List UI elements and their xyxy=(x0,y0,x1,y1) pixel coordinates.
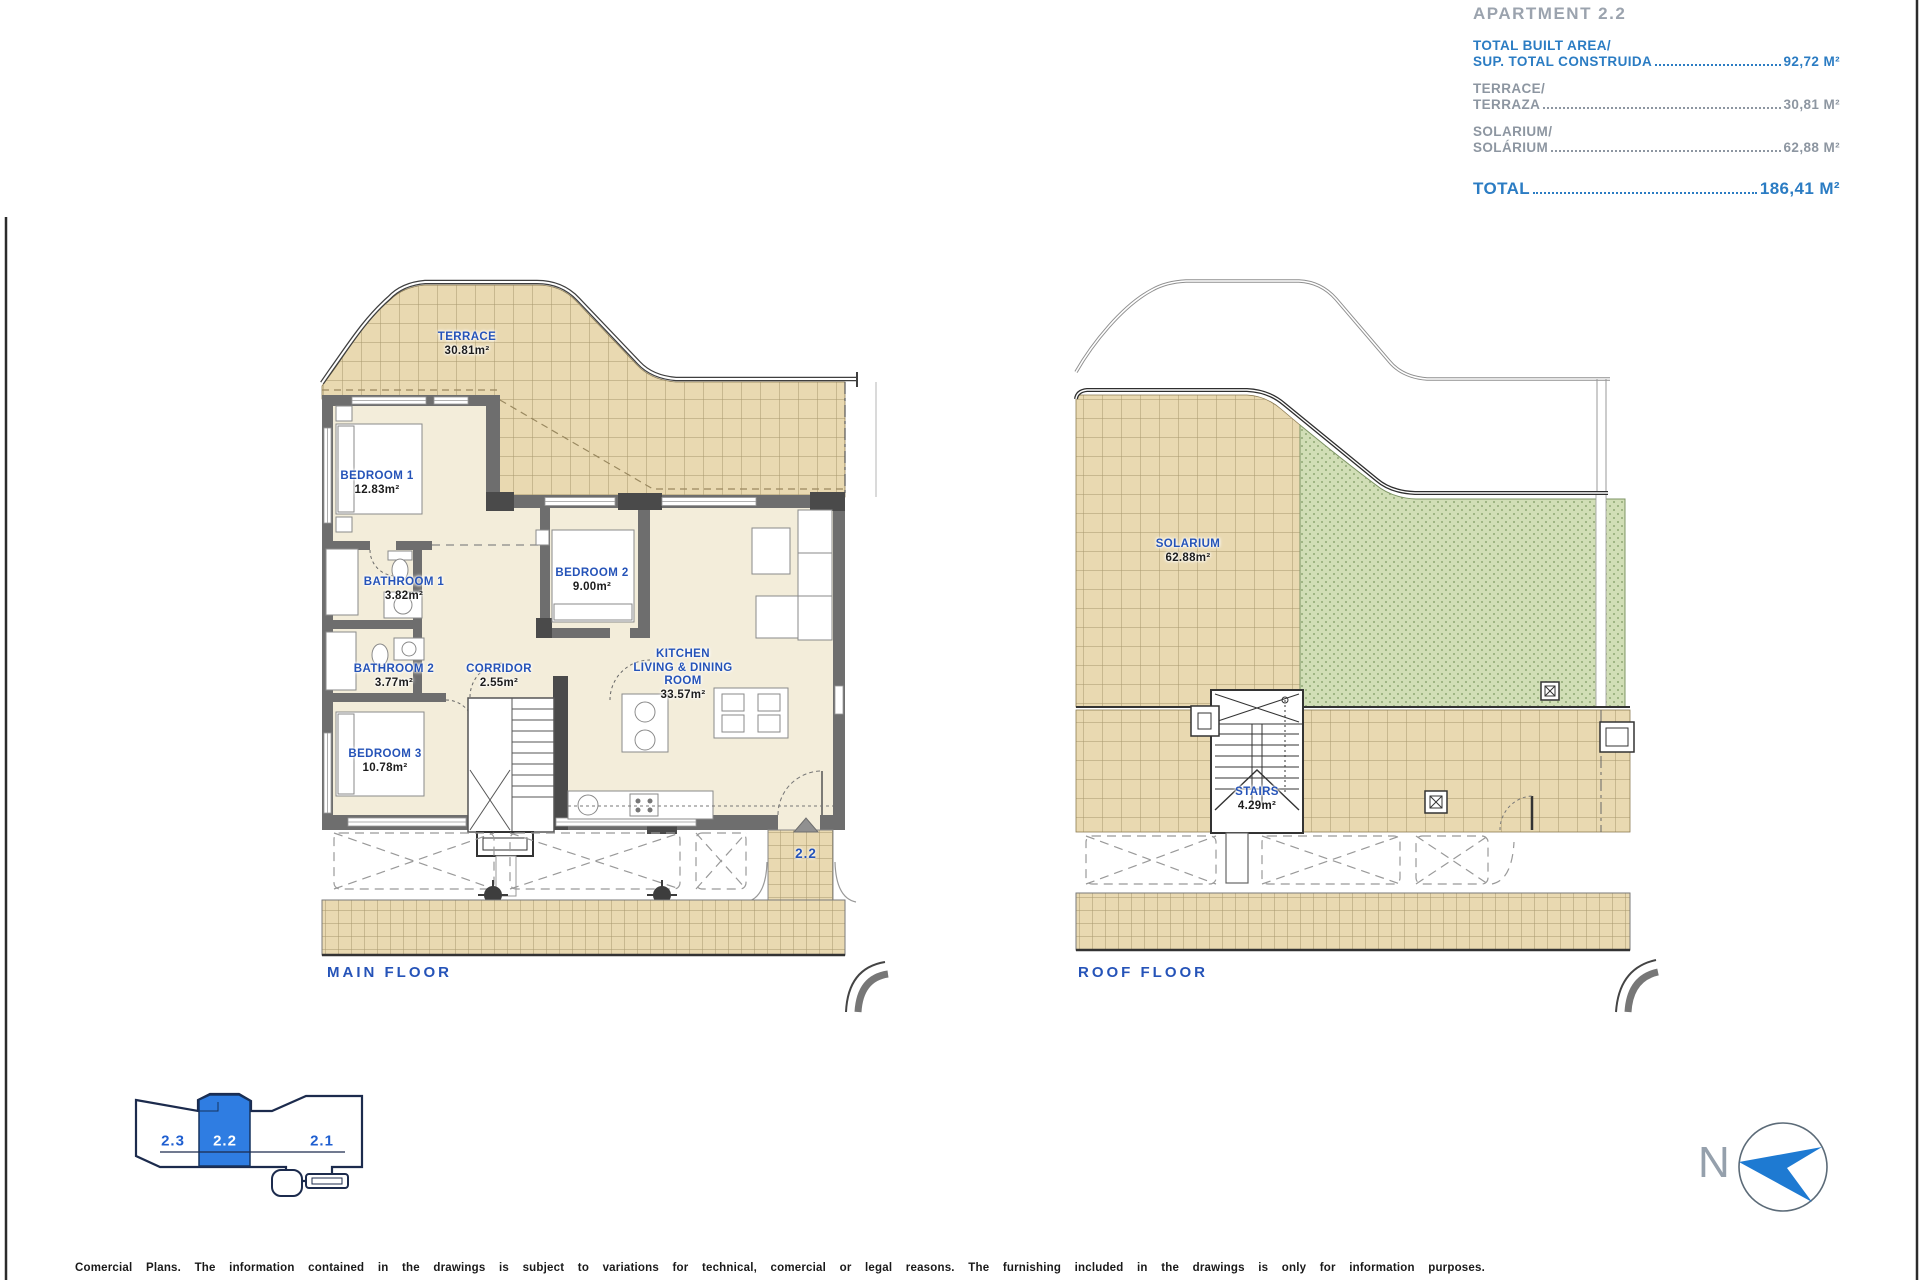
room-label-stairs: STAIRS 4.29m² xyxy=(1235,786,1279,813)
main-lower-band xyxy=(334,818,856,910)
room-label-bedroom1: BEDROOM 1 12.83m² xyxy=(340,470,413,497)
room-label-kitchen-living: KITCHEN LIVING & DINING ROOM 33.57m² xyxy=(633,648,732,702)
roof-road-corner xyxy=(1616,960,1658,1012)
north-arrow-icon xyxy=(1739,1123,1827,1211)
footer-disclaimer: Comercial Plans. The information contain… xyxy=(75,1262,1485,1274)
main-floor-plan xyxy=(322,282,888,1012)
area-row-built: TOTAL BUILT AREA/ SUP. TOTAL CONSTRUIDA … xyxy=(1473,38,1840,69)
dotted-leader xyxy=(1551,150,1780,152)
area-row-label-en: TOTAL BUILT AREA/ xyxy=(1473,38,1840,54)
area-row-value: 62,88 M² xyxy=(1784,140,1840,156)
north-label: N xyxy=(1698,1138,1730,1188)
area-row-terrace: TERRACE/ TERRAZA 30,81 M² xyxy=(1473,81,1840,112)
roof-floor-caption: ROOF FLOOR xyxy=(1078,964,1208,981)
main-stairs xyxy=(468,698,554,896)
key-plan-unit-22 xyxy=(199,1095,250,1166)
room-label-bedroom3: BEDROOM 3 10.78m² xyxy=(348,748,421,775)
total-value: 186,41 M² xyxy=(1760,179,1840,199)
dotted-leader xyxy=(1543,107,1780,109)
roof-walkway-tiles xyxy=(1076,893,1630,950)
main-walkway-tiles xyxy=(322,900,845,955)
room-label-bathroom2: BATHROOM 2 3.77m² xyxy=(354,663,434,690)
roof-floor-plan xyxy=(1076,281,1658,1012)
key-plan-label-23: 2.3 xyxy=(161,1133,185,1150)
solarium-green-area xyxy=(1300,425,1625,707)
room-label-corridor: CORRIDOR 2.55m² xyxy=(466,663,532,690)
area-row-label-es: TERRAZA xyxy=(1473,97,1540,113)
title-block: APARTMENT 2.2 TOTAL BUILT AREA/ SUP. TOT… xyxy=(1473,4,1840,199)
room-label-bedroom2: BEDROOM 2 9.00m² xyxy=(555,567,628,594)
main-road-corner xyxy=(846,962,888,1012)
room-label-bathroom1: BATHROOM 1 3.82m² xyxy=(364,576,444,603)
area-row-value: 92,72 M² xyxy=(1784,54,1840,70)
area-row-label-es: SOLÁRIUM xyxy=(1473,140,1548,156)
roof-lower-band xyxy=(1086,836,1514,884)
entry-walkway-tiles xyxy=(768,830,833,902)
roof-band-tiles xyxy=(1076,710,1630,832)
plan-sheet: { "title_block": { "apartment_label": "A… xyxy=(0,0,1920,1280)
dotted-leader xyxy=(1655,64,1780,66)
total-row: TOTAL 186,41 M² xyxy=(1473,179,1840,199)
area-row-label-es: SUP. TOTAL CONSTRUIDA xyxy=(1473,54,1652,70)
area-row-label-en: SOLARIUM/ xyxy=(1473,124,1840,140)
area-row-solarium: SOLARIUM/ SOLÁRIUM 62,88 M² xyxy=(1473,124,1840,155)
main-floor-caption: MAIN FLOOR xyxy=(327,964,452,981)
room-label-terrace: TERRACE 30.81m² xyxy=(438,331,496,358)
key-plan-label-22: 2.2 xyxy=(213,1133,237,1150)
dotted-leader xyxy=(1533,192,1757,194)
area-row-label-en: TERRACE/ xyxy=(1473,81,1840,97)
key-plan-label-21: 2.1 xyxy=(310,1133,334,1150)
apartment-title: APARTMENT 2.2 xyxy=(1473,4,1840,24)
area-row-value: 30,81 M² xyxy=(1784,97,1840,113)
room-label-solarium: SOLARIUM 62.88m² xyxy=(1156,538,1221,565)
total-label: TOTAL xyxy=(1473,179,1530,199)
entrance-unit-label: 2.2 xyxy=(795,846,817,861)
